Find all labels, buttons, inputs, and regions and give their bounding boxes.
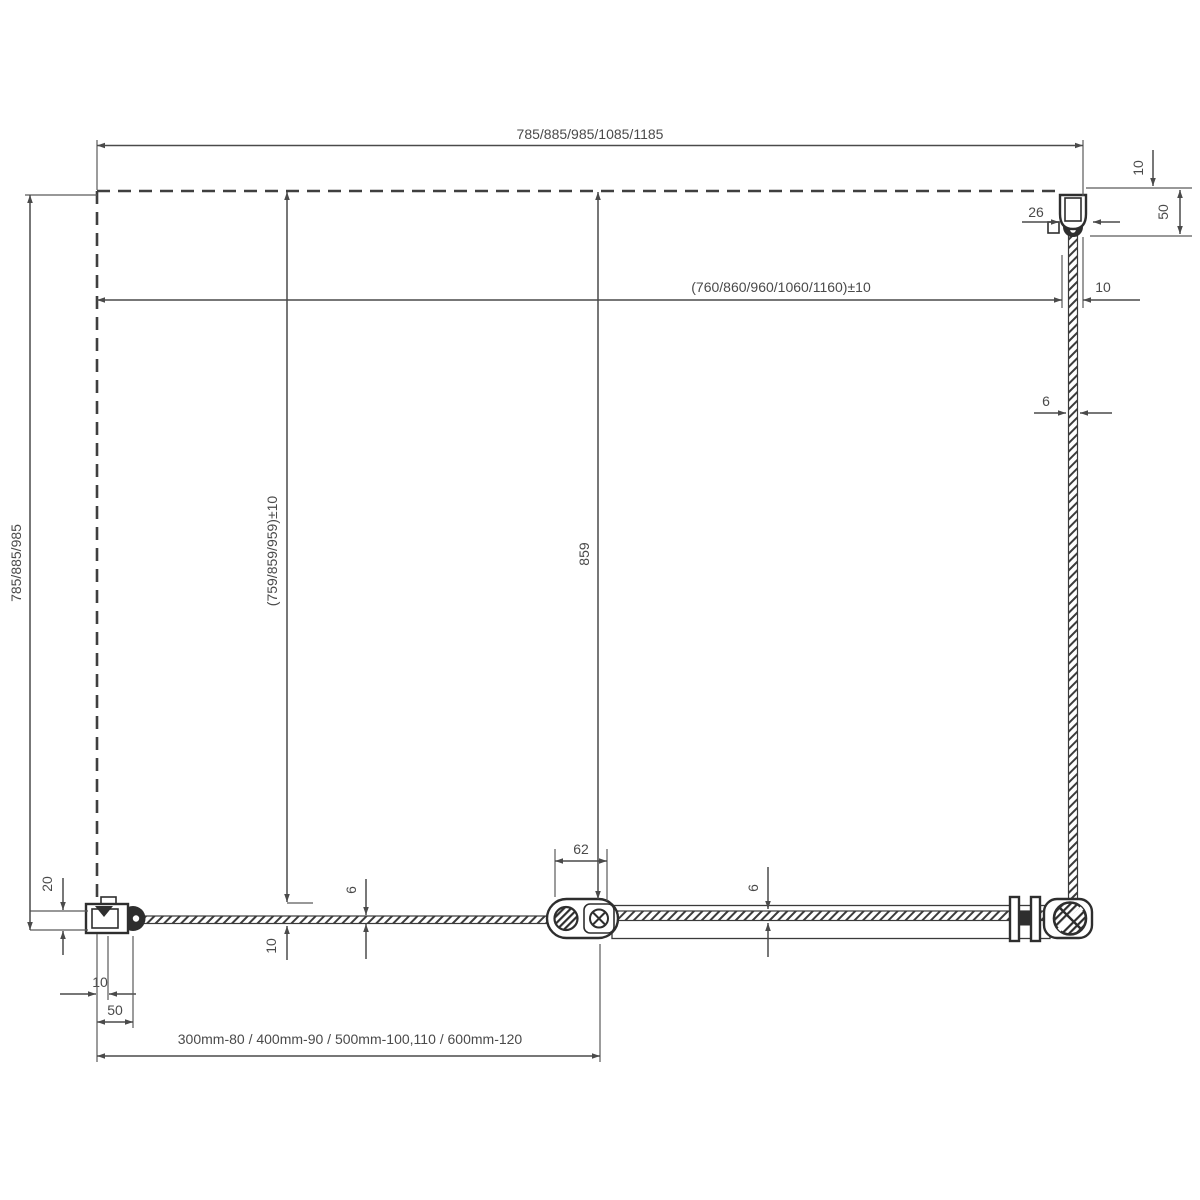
dim-label-side-adjust: 10 (1095, 279, 1111, 295)
profile-inner-top (1065, 198, 1081, 221)
dim-label-inner-height: (759/859/959)±10 (264, 496, 280, 607)
dim-top-width: 785/885/985/1085/1185 (97, 126, 1083, 196)
dim-wall-gap: 10 (60, 936, 136, 1000)
dim-door-width: 859 (576, 192, 598, 899)
dim-label-door-width: 859 (576, 542, 592, 566)
technical-drawing: 785/885/985/1085/1185 (760/860/960/1060/… (0, 0, 1200, 1200)
dim-label-side-glass-thickness: 6 (1042, 393, 1050, 409)
dim-wall-clearance: 20 (39, 876, 63, 955)
dim-hinge-width: 62 (555, 841, 607, 901)
dim-label-profile-height: 50 (1155, 204, 1171, 220)
dim-inner-width: (760/860/960/1060/1160)±10 (97, 255, 1062, 308)
dim-label-inner-width: (760/860/960/1060/1160)±10 (691, 279, 871, 295)
bracket-bar-left (1010, 897, 1019, 941)
dim-side-adjust: 10 (1083, 237, 1140, 308)
dim-label-extension-range: 300mm-80 / 400mm-90 / 500mm-100,110 / 60… (178, 1031, 523, 1047)
wall-profile-bottom-left (86, 897, 146, 933)
dim-label-top-width: 785/885/985/1085/1185 (517, 126, 664, 142)
dim-left-height: 785/885/985 (8, 195, 97, 930)
dim-label-left-height: 785/885/985 (8, 524, 24, 602)
dim-label-door-glass-thickness: 6 (745, 884, 761, 892)
dim-label-wall-clearance: 20 (39, 876, 55, 892)
side-panel-glass (1069, 236, 1078, 905)
bracket-crossbar (1019, 911, 1031, 926)
dim-label-wall-gap: 10 (92, 974, 108, 990)
pivot-hinge (547, 899, 618, 938)
dim-inner-height: (759/859/959)±10 (264, 192, 313, 903)
fixed-panel-glass (138, 916, 552, 924)
dim-label-profile-width: 50 (107, 1002, 123, 1018)
dim-label-top-offset: 10 (1130, 160, 1146, 176)
wall-profile-top-right (1048, 195, 1086, 237)
clamp-ball-slot (133, 915, 139, 921)
dim-glass-offset: 10 (263, 926, 287, 960)
door-glass (612, 911, 1050, 921)
drawing-canvas: 785/885/985/1085/1185 (760/860/960/1060/… (0, 0, 1200, 1200)
dim-label-hinge-width: 62 (573, 841, 589, 857)
dim-extension-range: 300mm-80 / 400mm-90 / 500mm-100,110 / 60… (97, 934, 600, 1062)
hinge-pivot (555, 907, 578, 930)
dim-top-right: 10 50 (1086, 150, 1192, 236)
dim-label-glass-offset: 10 (263, 938, 279, 954)
dim-label-profile-depth: 26 (1028, 204, 1044, 220)
bracket-bar-right (1031, 897, 1040, 941)
profile-tab-top (1048, 222, 1059, 233)
corner-connector (1044, 899, 1092, 938)
dim-label-fixed-glass-thickness: 6 (343, 886, 359, 894)
